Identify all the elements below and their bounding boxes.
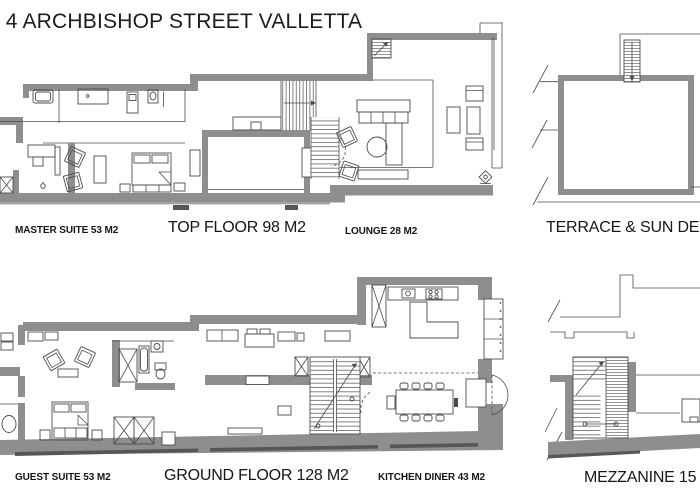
floor-plans-drawing (0, 0, 700, 500)
table-icon (78, 89, 108, 104)
desk-icon (28, 145, 60, 175)
bed-icon (52, 402, 88, 440)
ground-floor-plan (0, 277, 508, 456)
door-icon (162, 432, 175, 445)
armchair-icon (74, 346, 95, 367)
sink-icon (402, 289, 415, 298)
window-icon (246, 376, 269, 385)
label-master-suite: MASTER SUITE 53 M2 (15, 225, 118, 236)
sink-icon (151, 341, 163, 352)
label-kitchen-diner: KITCHEN DINER 43 M2 (378, 472, 485, 483)
door-knob-icon (41, 182, 46, 189)
sink-icon (148, 90, 158, 103)
bed-icon (132, 153, 171, 192)
terrace-plan (532, 34, 700, 205)
stairs-icon (311, 117, 345, 179)
stairs-icon (310, 357, 360, 434)
shower-icon (119, 349, 137, 382)
column-icon (295, 357, 308, 376)
floor-light-icon (479, 171, 492, 184)
mezzanine-plan (545, 275, 700, 460)
top-floor-plan (0, 22, 502, 210)
column-icon (372, 285, 386, 327)
stairs-icon (624, 40, 640, 82)
bench-icon (358, 170, 408, 179)
label-mezzanine: MEZZANINE 15 M2 (584, 469, 700, 487)
break-mark-icon (532, 65, 700, 205)
shower-icon (127, 92, 138, 113)
table-icon (245, 329, 274, 347)
door-swing-icon (361, 391, 372, 413)
label-terrace: TERRACE & SUN DECK (546, 219, 700, 237)
armchair-icon (339, 161, 359, 181)
armchair-icon (336, 126, 357, 147)
title-text: 4 ARCHBISHOP STREET VALLETTA (6, 10, 363, 33)
sofa-icon (357, 100, 410, 165)
hob-icon (426, 289, 442, 299)
dining-table-icon (387, 383, 458, 421)
label-top-floor: TOP FLOOR 98 M2 (168, 219, 306, 237)
desk-icon (682, 399, 700, 422)
floorplan-sheet: T 4 ARCHBISHOP STREET VALLETTA MASTER SU… (0, 0, 700, 500)
window-icon (228, 428, 262, 434)
balcony-bay-icon (484, 299, 503, 359)
kitchen-counter-icon (388, 287, 458, 338)
round-table-icon (367, 137, 387, 157)
label-ground-floor: GROUND FLOOR 128 M2 (164, 467, 349, 485)
stairs-icon (372, 39, 391, 58)
stairs-icon (573, 357, 628, 438)
bathtub-icon (2, 416, 16, 433)
bathtub-icon (33, 90, 53, 103)
page-title: T 4 ARCHBISHOP STREET VALLETTA (0, 10, 362, 34)
table-icon (58, 369, 78, 377)
label-lounge: LOUNGE 28 M2 (345, 226, 417, 237)
toilet-icon (155, 363, 166, 379)
window-icon (302, 148, 312, 177)
window-icon (190, 150, 200, 176)
column-icon (0, 177, 13, 193)
label-guest-suite: GUEST SUITE 53 M2 (15, 472, 111, 483)
bathtub-icon (139, 346, 149, 373)
rug-icon (94, 156, 106, 183)
armchair-icon (43, 349, 65, 371)
tv-unit-icon (447, 86, 483, 150)
